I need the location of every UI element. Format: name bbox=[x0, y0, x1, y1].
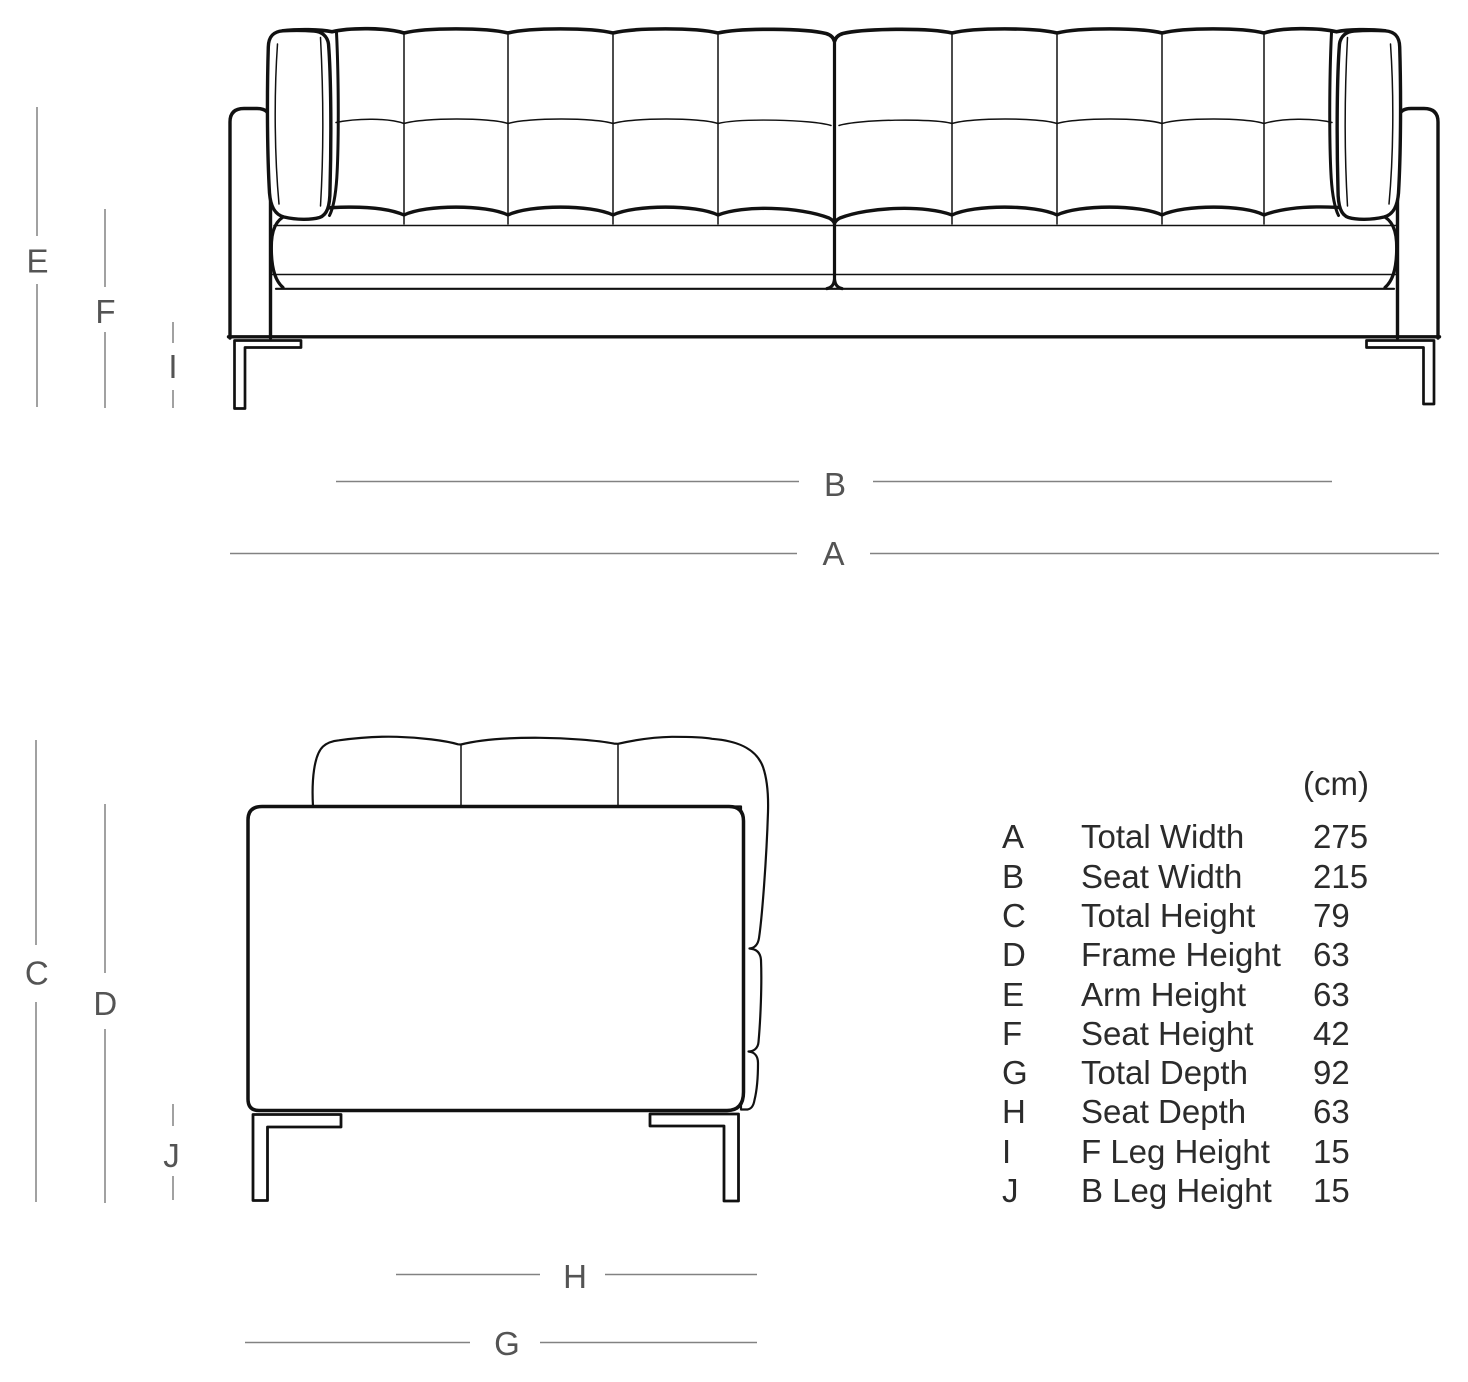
svg-text:63: 63 bbox=[1313, 936, 1350, 973]
svg-text:275: 275 bbox=[1313, 818, 1368, 855]
svg-text:Total Depth: Total Depth bbox=[1081, 1054, 1248, 1091]
svg-text:Total Height: Total Height bbox=[1081, 897, 1255, 934]
svg-text:I: I bbox=[168, 348, 177, 385]
svg-text:G: G bbox=[494, 1325, 520, 1362]
svg-text:63: 63 bbox=[1313, 976, 1350, 1013]
svg-text:F Leg Height: F Leg Height bbox=[1081, 1133, 1270, 1170]
svg-text:F: F bbox=[95, 293, 115, 330]
svg-text:63: 63 bbox=[1313, 1093, 1350, 1130]
svg-text:Frame Height: Frame Height bbox=[1081, 936, 1281, 973]
svg-text:79: 79 bbox=[1313, 897, 1350, 934]
svg-text:A: A bbox=[822, 535, 844, 572]
svg-text:Total Width: Total Width bbox=[1081, 818, 1244, 855]
svg-text:E: E bbox=[26, 243, 48, 280]
svg-text:H: H bbox=[1002, 1093, 1026, 1130]
svg-text:A: A bbox=[1002, 818, 1024, 855]
svg-text:E: E bbox=[1002, 976, 1024, 1013]
svg-text:B Leg Height: B Leg Height bbox=[1081, 1172, 1272, 1209]
svg-text:Arm Height: Arm Height bbox=[1081, 976, 1246, 1013]
svg-text:C: C bbox=[25, 955, 49, 992]
svg-text:C: C bbox=[1002, 897, 1026, 934]
svg-text:H: H bbox=[563, 1258, 587, 1295]
svg-text:92: 92 bbox=[1313, 1054, 1350, 1091]
svg-text:J: J bbox=[163, 1137, 180, 1174]
svg-text:15: 15 bbox=[1313, 1133, 1350, 1170]
svg-text:D: D bbox=[93, 985, 117, 1022]
svg-text:15: 15 bbox=[1313, 1172, 1350, 1209]
svg-text:215: 215 bbox=[1313, 858, 1368, 895]
svg-text:I: I bbox=[1002, 1133, 1011, 1170]
svg-text:B: B bbox=[1002, 858, 1024, 895]
svg-text:G: G bbox=[1002, 1054, 1028, 1091]
svg-text:B: B bbox=[824, 466, 846, 503]
svg-text:J: J bbox=[1002, 1172, 1019, 1209]
svg-text:Seat Width: Seat Width bbox=[1081, 858, 1242, 895]
svg-text:Seat Height: Seat Height bbox=[1081, 1015, 1253, 1052]
svg-text:Seat Depth: Seat Depth bbox=[1081, 1093, 1246, 1130]
svg-text:F: F bbox=[1002, 1015, 1022, 1052]
svg-text:(cm): (cm) bbox=[1303, 765, 1369, 802]
svg-text:42: 42 bbox=[1313, 1015, 1350, 1052]
svg-text:D: D bbox=[1002, 936, 1026, 973]
